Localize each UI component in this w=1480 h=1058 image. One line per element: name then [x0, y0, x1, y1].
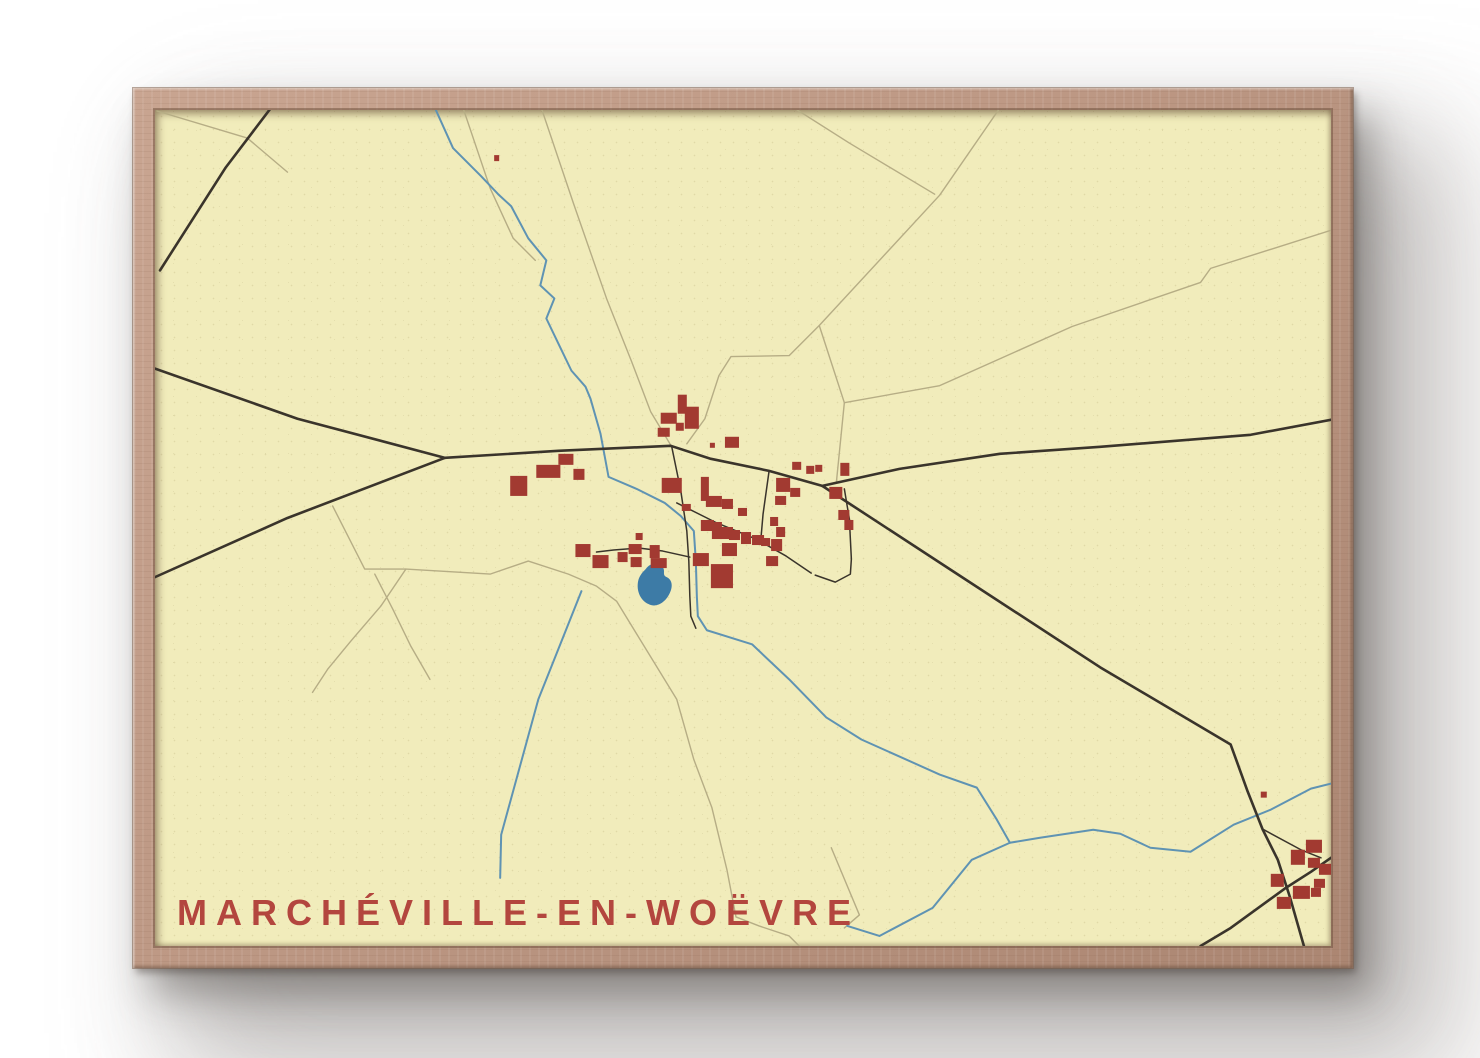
minor-roads	[157, 110, 1331, 946]
map-canvas	[155, 110, 1331, 946]
pond	[638, 564, 672, 606]
map-paper: MARCHÉVILLE-EN-WOËVRE	[155, 110, 1331, 946]
streams	[435, 110, 1331, 936]
buildings	[494, 155, 1331, 909]
village-streets	[597, 447, 1321, 858]
poster-frame: MARCHÉVILLE-EN-WOËVRE	[133, 88, 1353, 968]
major-roads	[155, 110, 1331, 946]
map-title: MARCHÉVILLE-EN-WOËVRE	[177, 892, 860, 934]
